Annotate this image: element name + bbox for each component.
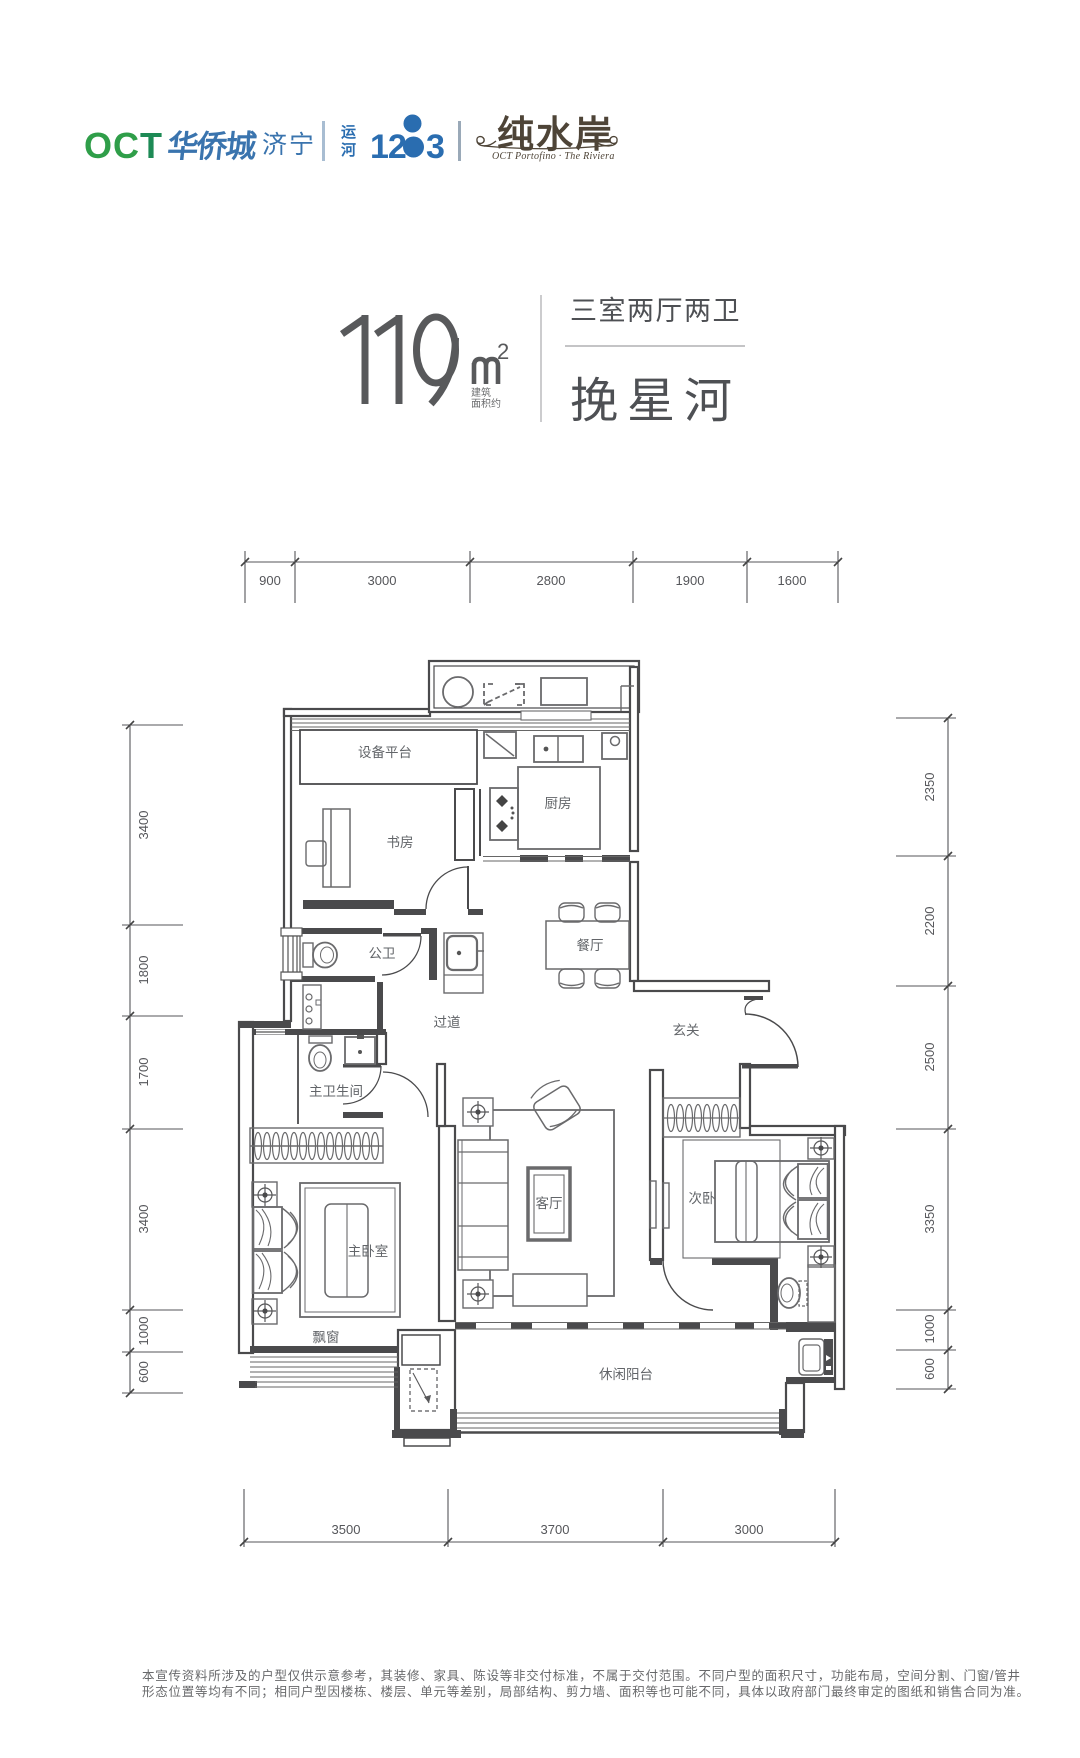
svg-text:三室两厅两卫: 三室两厅两卫 [570, 296, 741, 326]
svg-text:济宁: 济宁 [262, 131, 316, 159]
svg-text:3350: 3350 [922, 1205, 937, 1234]
svg-text:12: 12 [370, 128, 406, 166]
svg-text:1800: 1800 [136, 956, 151, 985]
svg-text:3000: 3000 [368, 573, 397, 588]
svg-text:OCT: OCT [84, 125, 163, 166]
svg-text:餐厅: 餐厅 [577, 938, 604, 953]
svg-text:飘窗: 飘窗 [313, 1329, 340, 1345]
svg-text:书房: 书房 [387, 835, 414, 850]
svg-text:挽星河: 挽星河 [570, 375, 741, 428]
svg-text:3400: 3400 [136, 811, 151, 840]
svg-text:2350: 2350 [922, 773, 937, 802]
svg-text:1600: 1600 [778, 573, 807, 588]
svg-text:厨房: 厨房 [545, 796, 572, 811]
svg-text:纯水岸: 纯水岸 [497, 114, 614, 156]
svg-text:2500: 2500 [922, 1043, 937, 1072]
svg-text:3400: 3400 [136, 1205, 151, 1234]
svg-text:面积约: 面积约 [471, 397, 501, 410]
svg-text:运: 运 [341, 124, 356, 141]
svg-text:华侨城: 华侨城 [166, 129, 259, 164]
svg-text:过道: 过道 [434, 1015, 461, 1030]
svg-text:600: 600 [922, 1358, 937, 1380]
svg-text:形态位置等均有不同；相同户型因楼栋、楼层、单元等差别，局部结: 形态位置等均有不同；相同户型因楼栋、楼层、单元等差别，局部结构、剪力墙、面积等也… [142, 1684, 1030, 1699]
svg-text:建筑: 建筑 [471, 386, 491, 399]
svg-text:主卫生间: 主卫生间 [309, 1084, 363, 1099]
svg-text:2: 2 [497, 339, 509, 364]
svg-text:3700: 3700 [541, 1522, 570, 1537]
svg-text:次卧: 次卧 [689, 1191, 716, 1206]
svg-text:1900: 1900 [676, 573, 705, 588]
svg-text:设备平台: 设备平台 [358, 744, 412, 760]
svg-text:休闲阳台: 休闲阳台 [599, 1367, 653, 1382]
svg-text:2800: 2800 [537, 573, 566, 588]
svg-text:玄关: 玄关 [673, 1022, 700, 1038]
svg-text:3: 3 [426, 128, 445, 166]
svg-text:客厅: 客厅 [536, 1195, 563, 1211]
svg-text:河: 河 [341, 141, 356, 159]
svg-text:1000: 1000 [922, 1315, 937, 1344]
svg-text:OCT Portofino · The Riviera: OCT Portofino · The Riviera [492, 151, 615, 162]
svg-text:600: 600 [136, 1361, 151, 1383]
svg-text:公卫: 公卫 [369, 946, 396, 961]
svg-text:主卧室: 主卧室 [348, 1243, 389, 1259]
svg-text:3500: 3500 [332, 1522, 361, 1537]
svg-text:3000: 3000 [735, 1522, 764, 1537]
svg-text:1700: 1700 [136, 1058, 151, 1087]
svg-text:2200: 2200 [922, 907, 937, 936]
svg-text:本宣传资料所涉及的户型仅供示意参考，其装修、家具、陈设等非交: 本宣传资料所涉及的户型仅供示意参考，其装修、家具、陈设等非交付标准，不属于交付范… [142, 1668, 1021, 1683]
svg-text:900: 900 [259, 573, 281, 588]
svg-text:1000: 1000 [136, 1317, 151, 1346]
